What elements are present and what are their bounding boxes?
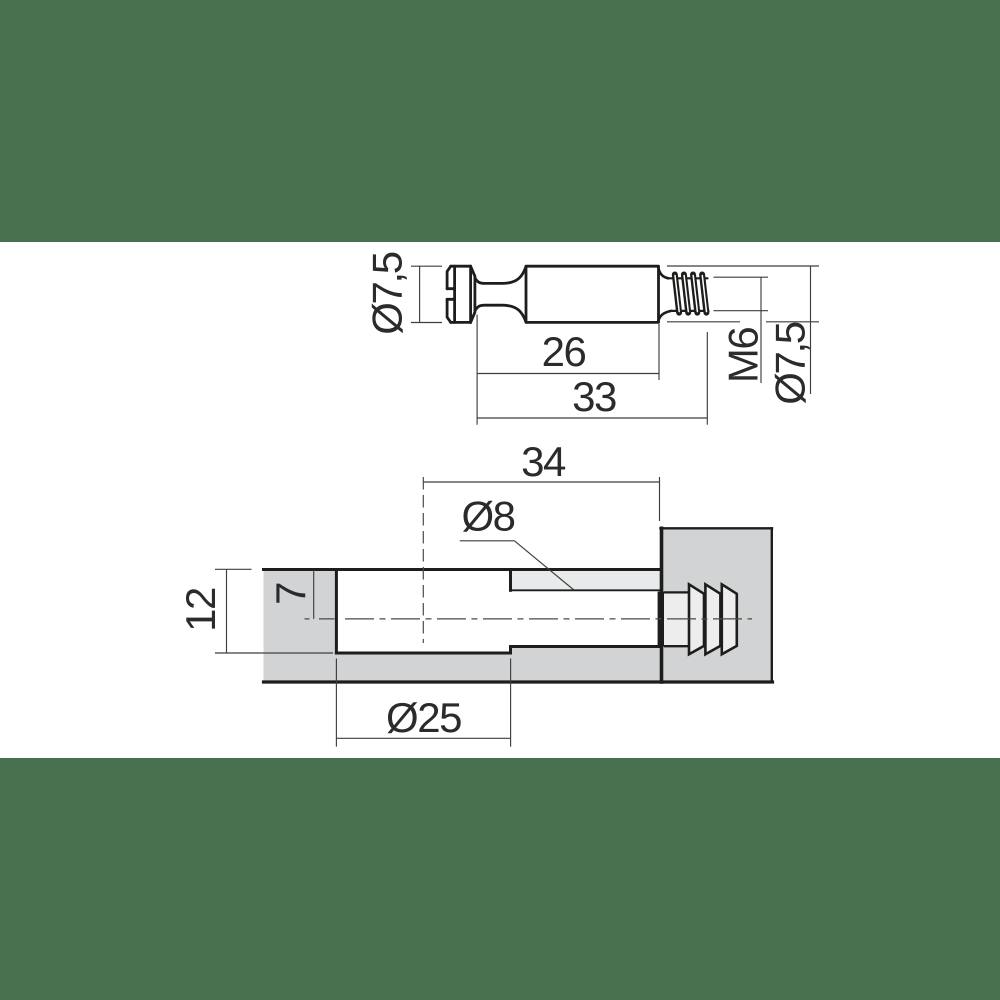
svg-text:M6: M6 — [720, 328, 767, 383]
svg-text:26: 26 — [542, 328, 586, 375]
svg-text:7: 7 — [267, 583, 314, 605]
svg-text:Ø25: Ø25 — [386, 694, 461, 741]
svg-text:Ø8: Ø8 — [461, 492, 514, 539]
svg-text:Ø7,5: Ø7,5 — [364, 252, 411, 334]
svg-text:12: 12 — [177, 588, 224, 632]
svg-text:Ø7,5: Ø7,5 — [767, 322, 814, 404]
svg-text:34: 34 — [521, 438, 566, 485]
svg-text:33: 33 — [572, 373, 616, 420]
